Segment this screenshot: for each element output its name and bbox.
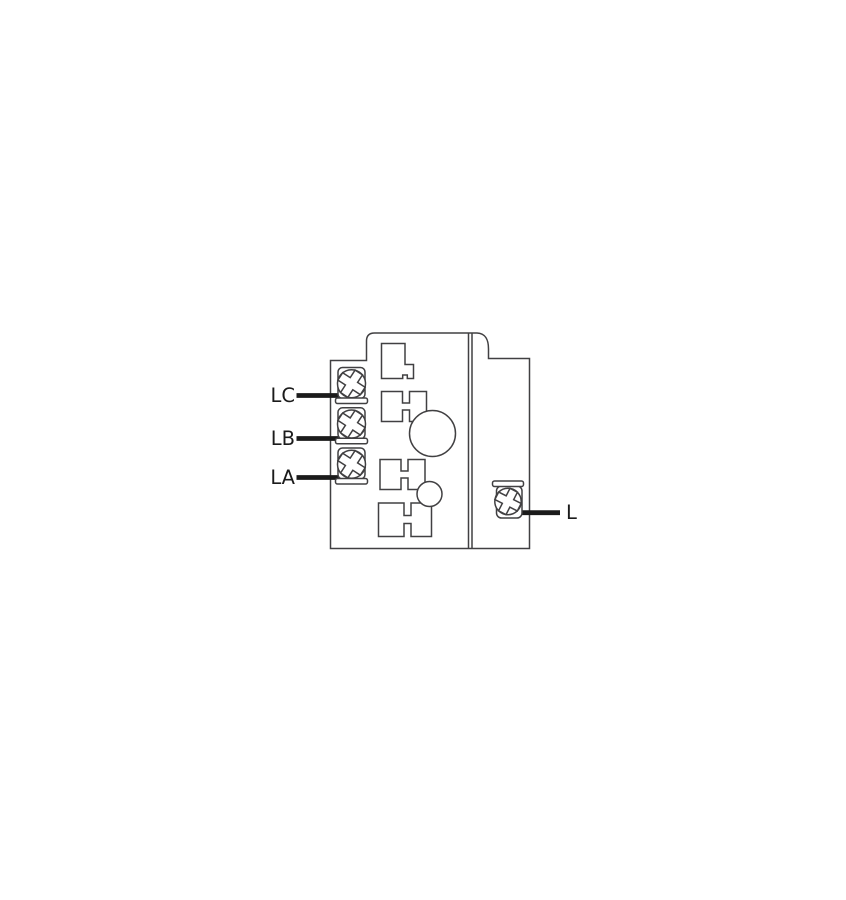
small-hole-circle	[417, 482, 442, 507]
terminal-label-l: L	[566, 500, 577, 526]
terminal-label-lb: LB	[245, 426, 295, 452]
wiring-diagram-canvas: LC LB LA L	[0, 0, 846, 900]
terminal-label-la: LA	[245, 465, 295, 491]
screw-terminal-la-icon	[333, 446, 370, 484]
terminal-label-lc: LC	[245, 383, 295, 409]
terminal-block-diagram	[0, 0, 846, 900]
screw-terminal-lb-icon	[333, 405, 370, 443]
screw-terminal-lc-icon	[333, 365, 370, 403]
large-hole-circle	[410, 411, 456, 457]
screw-terminal-l-icon	[491, 481, 525, 518]
